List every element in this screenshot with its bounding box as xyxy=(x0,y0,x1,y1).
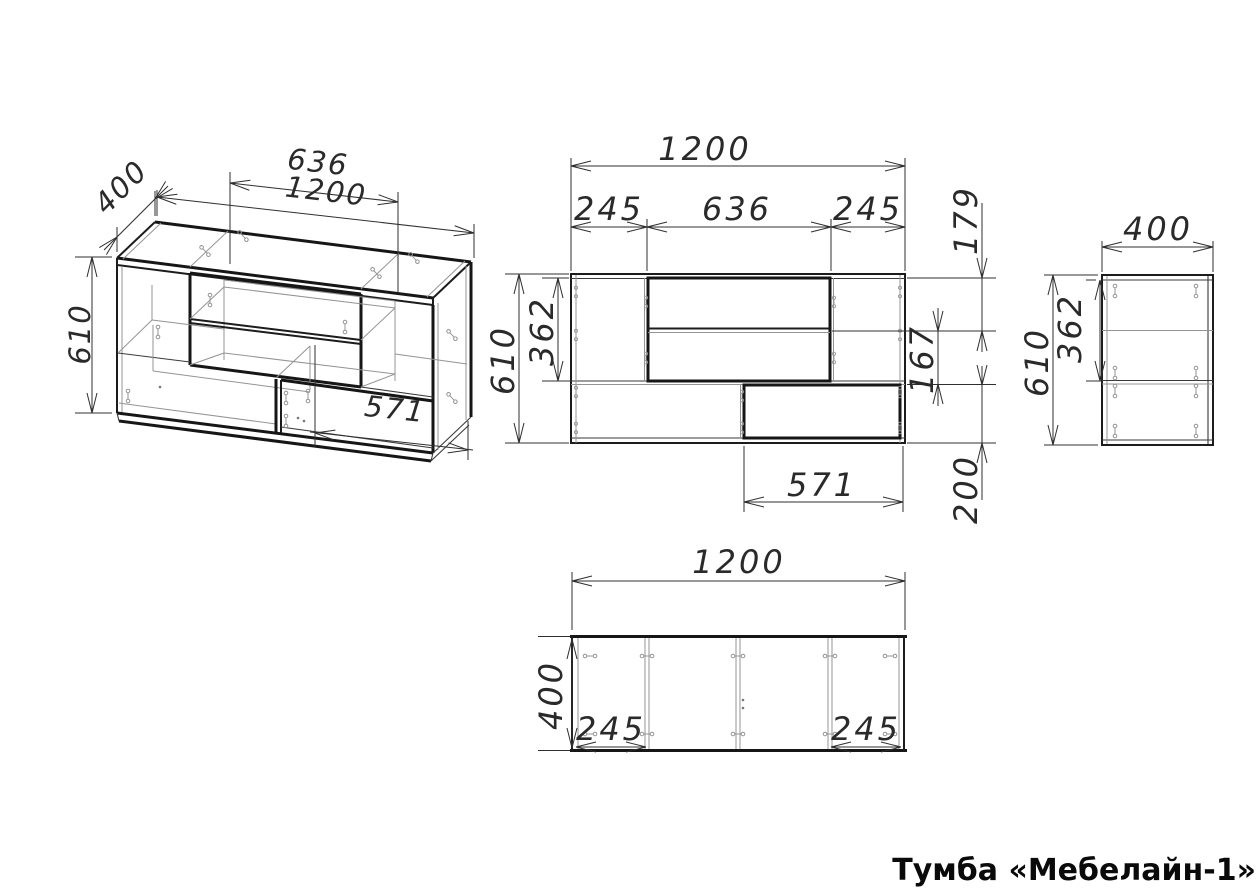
screw-mark xyxy=(731,654,745,658)
drawing-title: Тумба «Мебелайн-1» xyxy=(892,853,1256,888)
dim-label-front-top-section: 362 xyxy=(523,296,561,366)
front-view: 1200 245 636 245 610 xyxy=(484,130,996,524)
screw-mark xyxy=(1113,384,1117,398)
dim-label-front-middle-section: 636 xyxy=(702,190,772,228)
screw-mark xyxy=(640,654,654,658)
screw-mark xyxy=(199,245,211,257)
screw-mark xyxy=(1194,384,1198,398)
dim-label-front-bottom-section: 200 xyxy=(947,454,985,524)
screw-mark xyxy=(1194,424,1198,438)
screw-mark xyxy=(156,325,160,339)
top-view: 1200 400 245 245 xyxy=(532,543,907,752)
side-screw-marks xyxy=(1113,284,1198,438)
screw-mark xyxy=(370,267,382,279)
side-dim-top-section: 362 xyxy=(1051,280,1105,381)
iso-dim-depth: 400 xyxy=(87,153,172,254)
screw-mark xyxy=(1194,284,1198,298)
front-dim-door-width: 571 xyxy=(744,446,903,512)
screw-mark xyxy=(284,414,288,428)
iso-dim-height: 610 xyxy=(63,257,112,413)
dim-label-top-right-section: 245 xyxy=(831,710,901,748)
iso-dim-width: 1200 xyxy=(156,170,474,258)
dim-label-front-left-section: 245 xyxy=(574,190,644,228)
dim-label-front-width: 1200 xyxy=(658,130,751,168)
screw-mark xyxy=(208,293,212,307)
side-cabinet-outline xyxy=(1102,275,1213,445)
screw-mark xyxy=(583,654,597,658)
blueprint-canvas: 610 400 636 1200 xyxy=(0,0,1260,892)
front-cabinet-outline xyxy=(571,274,905,443)
dim-label-front-upper-compartment: 179 xyxy=(947,185,985,255)
screw-mark xyxy=(446,329,458,341)
front-dim-top-section: 362 xyxy=(523,278,571,381)
dim-label-iso-height: 610 xyxy=(63,303,97,364)
front-screw-marks xyxy=(574,286,901,434)
top-dim-depth: 400 xyxy=(532,637,577,751)
screw-mark xyxy=(1113,284,1117,298)
isometric-view: 610 400 636 1200 xyxy=(63,142,475,461)
side-dim-depth: 400 xyxy=(1102,210,1213,272)
top-dim-width: 1200 xyxy=(572,543,905,630)
screw-mark xyxy=(731,732,745,736)
screw-mark xyxy=(1194,366,1198,380)
dim-label-front-lower-compartment: 167 xyxy=(903,324,941,394)
dim-label-top-depth: 400 xyxy=(532,660,570,730)
dim-label-iso-door-width: 571 xyxy=(363,389,428,429)
dim-label-front-height: 610 xyxy=(484,325,522,395)
dim-label-top-width: 1200 xyxy=(692,543,785,581)
dim-label-iso-width: 1200 xyxy=(284,170,369,213)
front-dim-left-section: 245 xyxy=(571,190,647,271)
screw-mark xyxy=(126,389,130,403)
iso-dim-middle-width: 636 xyxy=(229,142,398,293)
dim-label-front-door-width: 571 xyxy=(787,466,857,504)
screw-mark xyxy=(284,391,288,405)
top-dim-right-section: 245 xyxy=(831,710,901,752)
dim-label-top-left-section: 245 xyxy=(576,710,646,748)
screw-mark xyxy=(883,654,897,658)
dim-label-side-depth: 400 xyxy=(1123,210,1193,248)
screw-mark xyxy=(343,320,347,334)
front-dim-middle-section: 636 xyxy=(647,190,831,271)
technical-drawing: 610 400 636 1200 xyxy=(0,0,1260,892)
screw-mark xyxy=(1113,424,1117,438)
dim-label-front-right-section: 245 xyxy=(833,190,903,228)
side-view: 400 610 362 xyxy=(1018,210,1213,445)
screw-mark xyxy=(823,654,837,658)
dim-label-side-top-section: 362 xyxy=(1051,293,1089,363)
screw-mark xyxy=(446,392,458,404)
top-dim-left-section: 245 xyxy=(576,710,646,752)
front-dim-right-section: 245 xyxy=(831,190,905,232)
front-bottom-door xyxy=(744,385,900,438)
dim-label-iso-depth: 400 xyxy=(87,153,154,220)
screw-mark xyxy=(1113,366,1117,380)
